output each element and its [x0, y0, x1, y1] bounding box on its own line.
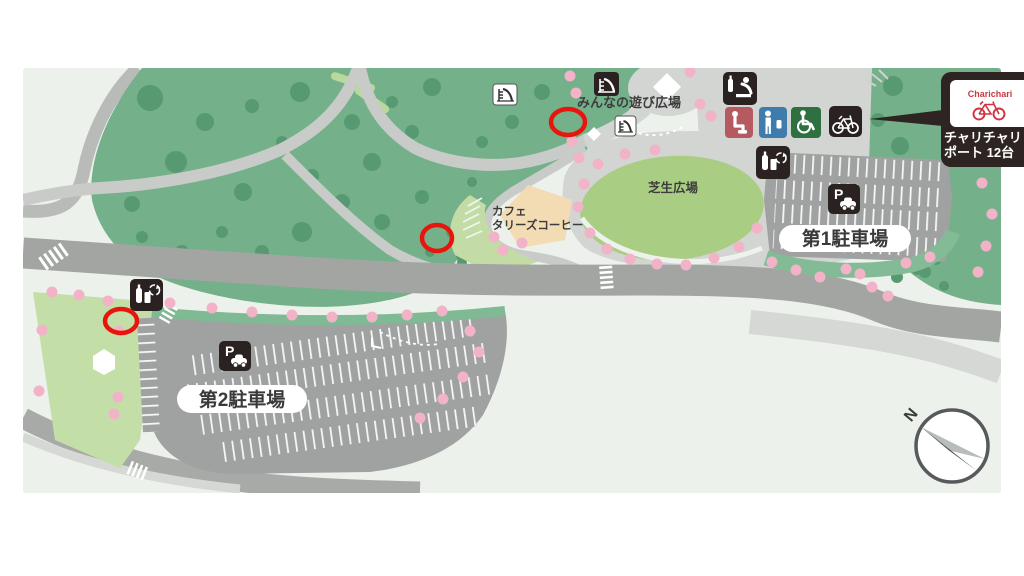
- baby-care-icon: [723, 72, 757, 105]
- park-map-canvas: P P みんなの遊び広場 芝生広場 カフェ タリーズコーヒー 第1駐車場 第2駐…: [0, 0, 1024, 576]
- slide-icon: [493, 84, 517, 105]
- cafe-label-line2: タリーズコーヒー: [492, 218, 583, 232]
- vending-machine-icon: [756, 146, 790, 179]
- toilet-accessible-icon: [791, 107, 821, 138]
- charichari-line1: チャリチャリ: [944, 130, 1022, 145]
- slide-icon: [615, 116, 636, 136]
- cafe-label-line1: カフェ: [492, 205, 527, 218]
- vending-machine-icon: [130, 279, 163, 311]
- parking1-label: 第1駐車場: [779, 225, 911, 252]
- park-map: P P みんなの遊び広場 芝生広場 カフェ タリーズコーヒー 第1駐車場 第2駐…: [0, 0, 1024, 576]
- svg-text:P: P: [834, 186, 843, 202]
- parking2-label: 第2駐車場: [177, 385, 307, 413]
- toilet-men-icon: [759, 107, 787, 138]
- lawn-plaza-label: 芝生広場: [648, 180, 699, 195]
- play-plaza-label: みんなの遊び広場: [577, 95, 681, 110]
- parking-icon: P: [219, 341, 251, 371]
- parking2-label-text: 第2駐車場: [199, 388, 286, 411]
- parking1-label-text: 第1駐車場: [802, 227, 889, 250]
- parking-icon: P: [828, 184, 860, 214]
- slide-icon: [594, 72, 619, 96]
- svg-text:P: P: [225, 343, 234, 359]
- charichari-brand: Charichari: [968, 89, 1013, 99]
- bicycle-parking-icon: [829, 106, 862, 137]
- charichari-line2: ポート 12台: [944, 145, 1014, 160]
- toilet-women-icon: [725, 107, 753, 138]
